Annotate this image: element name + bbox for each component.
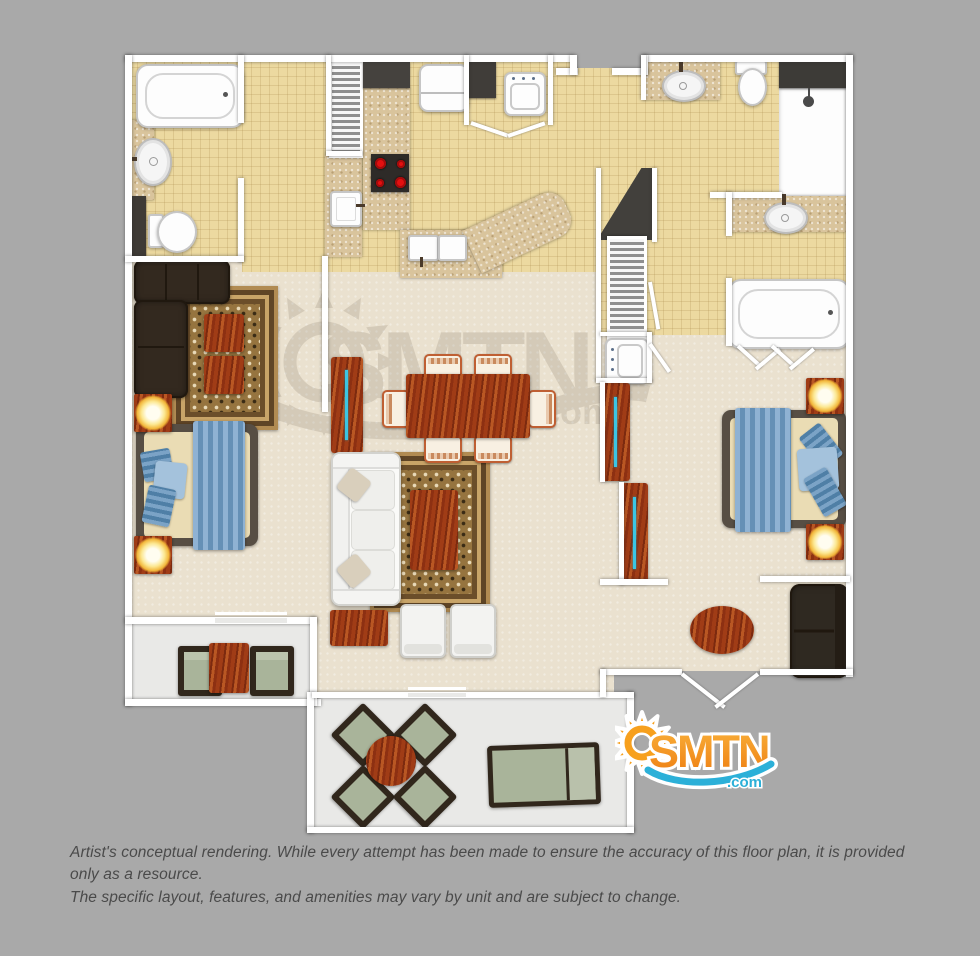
right-section-balcony-connector bbox=[600, 669, 606, 697]
kitchen-faucet-icon bbox=[420, 257, 423, 267]
oval-table-icon bbox=[690, 606, 754, 654]
washer-knob bbox=[512, 77, 515, 80]
washer-knob bbox=[611, 348, 614, 351]
console-table-icon bbox=[330, 610, 388, 646]
chair-back bbox=[478, 358, 508, 364]
louvered-closet-icon bbox=[329, 60, 363, 158]
hall-bath-vanity-sink-icon bbox=[764, 202, 808, 234]
outer-wall-right bbox=[846, 55, 853, 677]
tub-room-left-wall bbox=[726, 278, 732, 346]
hall-vanity-faucet-icon bbox=[782, 194, 786, 205]
right-bed-runner bbox=[735, 408, 791, 532]
vanity2-left-wall bbox=[726, 192, 732, 236]
tv-screen-icon bbox=[633, 497, 636, 569]
entry-jamb-left bbox=[570, 55, 577, 75]
cushion-seam bbox=[197, 264, 199, 300]
kitchen-counter-dark-section bbox=[363, 62, 410, 88]
tv-screen-icon bbox=[614, 397, 617, 467]
disclaimer-text: Artist's conceptual rendering. While eve… bbox=[70, 842, 932, 909]
chair-back bbox=[428, 358, 458, 364]
outer-wall-top-left bbox=[125, 55, 573, 62]
right-section-bottom-wall-right bbox=[760, 669, 853, 675]
cushion-seam bbox=[165, 264, 167, 300]
nightstand-lamp-icon bbox=[134, 536, 172, 574]
sink-drain bbox=[781, 214, 789, 222]
cushion-seam bbox=[138, 346, 184, 348]
living-room-balcony-wall bbox=[312, 692, 634, 698]
center-balcony-bottom-wall bbox=[307, 827, 634, 833]
sofa-icon bbox=[331, 452, 401, 606]
disclaimer-line-1: Artist's conceptual rendering. While eve… bbox=[70, 842, 932, 887]
kitchen-sink-right-icon bbox=[438, 235, 467, 261]
nightstand-lamp-icon bbox=[134, 394, 172, 432]
stove-burner bbox=[376, 179, 384, 187]
dining-chair bbox=[528, 390, 556, 428]
chair-back bbox=[454, 644, 492, 654]
smtn-logo[interactable]: SMTN .com bbox=[615, 706, 795, 798]
sofa-arm bbox=[333, 589, 399, 604]
kitchen-closet-left-wall bbox=[326, 55, 331, 155]
stove-burner bbox=[375, 158, 386, 169]
washer-nook-right-wall bbox=[647, 332, 652, 383]
shower-bottom-wall bbox=[710, 192, 782, 198]
sink-basin bbox=[336, 197, 356, 221]
kitchen-closet-bottom-wall bbox=[326, 151, 362, 156]
right-section-bottom-wall-left bbox=[600, 669, 682, 675]
washer-knob bbox=[532, 77, 535, 80]
stove-burner bbox=[397, 160, 405, 168]
washer-door bbox=[510, 83, 540, 110]
armchair-icon bbox=[400, 604, 446, 658]
bathtub-drain bbox=[828, 310, 833, 315]
bathtub-icon bbox=[136, 64, 244, 128]
pantry-closet bbox=[468, 62, 496, 98]
sink-drain bbox=[149, 157, 158, 166]
stairs-icon[interactable] bbox=[607, 236, 647, 340]
sink-drain bbox=[679, 82, 687, 90]
chaise-backrest bbox=[565, 747, 596, 800]
right-bedroom-south-wall-right bbox=[760, 576, 850, 582]
left-balcony-bottom-wall bbox=[125, 699, 321, 706]
patio-table-icon bbox=[209, 643, 249, 693]
chaise-lounge-icon bbox=[487, 742, 601, 808]
toilet-bowl-right-icon bbox=[738, 68, 767, 106]
armchair-icon bbox=[450, 604, 496, 658]
disclaimer-line-2: The specific layout, features, and ameni… bbox=[70, 887, 932, 909]
center-balcony-left-wall bbox=[307, 692, 314, 833]
bedroom-coffee-table-lower bbox=[204, 356, 244, 394]
washer-knob bbox=[611, 358, 614, 361]
nightstand-lamp-icon bbox=[806, 524, 844, 560]
kitchen-sink-left-icon bbox=[408, 235, 439, 261]
chair-cushion bbox=[256, 652, 288, 660]
round-patio-table-icon bbox=[366, 736, 416, 786]
laundry-closet-left-wall bbox=[464, 55, 469, 125]
left-bath-wall-upper bbox=[238, 55, 244, 123]
bathtub-basin bbox=[738, 289, 840, 339]
shower-head-arm bbox=[808, 88, 810, 98]
french-door-right-leaf[interactable] bbox=[714, 672, 759, 708]
dining-chair bbox=[474, 435, 512, 463]
washer-knob bbox=[522, 77, 525, 80]
left-balcony-slider-gap bbox=[215, 618, 287, 623]
left-bedroom-divider-wall bbox=[322, 256, 328, 412]
patio-chair-icon bbox=[250, 646, 294, 696]
tv-screen-icon bbox=[345, 370, 348, 440]
loveseat-cushions bbox=[794, 588, 834, 674]
living-coffee-table-icon bbox=[410, 490, 458, 570]
chair-back bbox=[478, 453, 508, 459]
pedestal-sink-icon bbox=[134, 138, 172, 186]
shower-header bbox=[779, 60, 847, 88]
stove-burner bbox=[395, 177, 406, 188]
sofa-cushion bbox=[351, 510, 395, 550]
right-bedroom-west-wall-upper bbox=[600, 382, 605, 482]
outer-wall-top-right bbox=[645, 55, 853, 62]
left-balcony-slider-door[interactable] bbox=[215, 612, 287, 615]
left-bath-wall-lower bbox=[238, 178, 244, 262]
sectional-sofa-side bbox=[134, 300, 188, 398]
bedroom-coffee-table-upper bbox=[204, 314, 244, 352]
loveseat-icon bbox=[790, 584, 848, 678]
stairs-washer-divider-wall bbox=[600, 332, 652, 336]
washer-knob bbox=[611, 368, 614, 371]
stairs-enclosure-right-wall bbox=[652, 168, 657, 242]
wet-bar-faucet-icon bbox=[356, 204, 365, 207]
logo-tld: .com bbox=[727, 774, 762, 791]
center-balcony-slider-gap bbox=[408, 693, 466, 697]
center-balcony-slider-door[interactable] bbox=[408, 687, 466, 690]
entry-recess bbox=[573, 50, 645, 68]
chair-back bbox=[546, 394, 552, 424]
outer-wall-left bbox=[125, 55, 132, 706]
floorplan-page: { "canvas": {"width": 980, "height": 956… bbox=[0, 0, 980, 956]
stove-cooktop-icon bbox=[371, 154, 409, 192]
chair-back bbox=[428, 453, 458, 459]
nightstand-lamp-icon bbox=[806, 378, 844, 414]
right-bath-divider-wall bbox=[641, 55, 646, 100]
wet-bar-sink-icon bbox=[330, 191, 362, 227]
refrigerator-icon bbox=[419, 64, 469, 112]
right-bedroom-south-wall-left bbox=[600, 579, 668, 585]
bathtub-basin bbox=[145, 73, 235, 119]
sofa-arm bbox=[333, 454, 399, 469]
stairs-enclosure-left-wall bbox=[596, 168, 601, 382]
bathtub-right-icon bbox=[728, 279, 850, 349]
left-bath-bottom-wall bbox=[125, 256, 244, 262]
fridge-divider bbox=[421, 92, 467, 94]
laundry-closet-right-wall bbox=[548, 55, 553, 125]
chair-back bbox=[386, 394, 392, 424]
right-bath-vanity-sink-icon bbox=[662, 70, 706, 102]
left-bed-runner bbox=[193, 421, 245, 550]
toilet-bowl-left-icon bbox=[157, 211, 197, 253]
right-bedroom-west-wall-lower bbox=[619, 482, 624, 585]
bathtub-drain bbox=[223, 92, 228, 97]
dining-chair bbox=[424, 435, 462, 463]
chair-back bbox=[404, 644, 442, 654]
dining-table-icon bbox=[406, 374, 530, 438]
washer-icon bbox=[504, 72, 546, 116]
washer-door bbox=[617, 344, 643, 378]
vanity-faucet-icon bbox=[679, 61, 683, 72]
sectional-sofa-top bbox=[134, 260, 230, 304]
